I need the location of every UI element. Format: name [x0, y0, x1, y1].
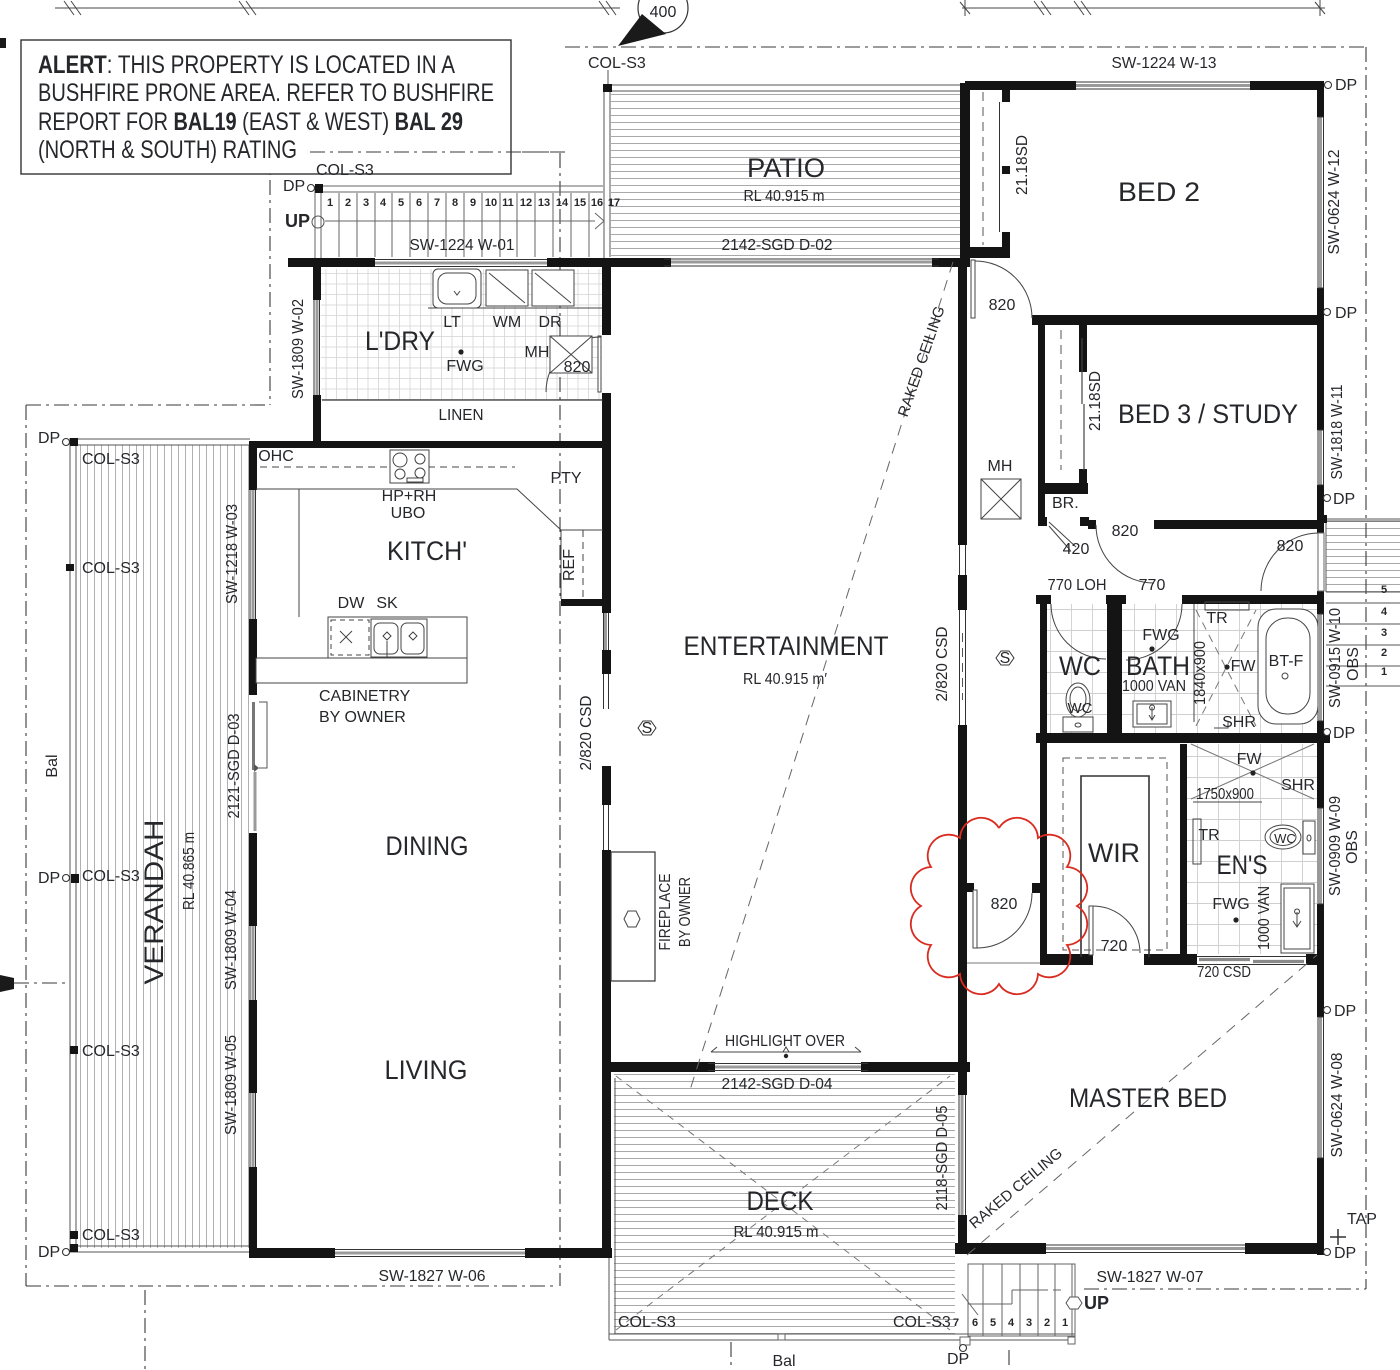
svg-text:770 LOH: 770 LOH [1048, 577, 1107, 594]
svg-text:4: 4 [380, 197, 387, 209]
svg-text:1000 VAN: 1000 VAN [1122, 678, 1186, 695]
svg-text:FWG: FWG [1142, 627, 1179, 644]
svg-text:4: 4 [1381, 606, 1388, 618]
svg-text:UP: UP [285, 211, 310, 231]
svg-text:5: 5 [1381, 584, 1387, 596]
svg-text:2142-SGD D-04: 2142-SGD D-04 [722, 1076, 833, 1093]
svg-text:6: 6 [972, 1317, 978, 1329]
svg-text:SW-0624 W-08: SW-0624 W-08 [1329, 1052, 1346, 1157]
svg-text:Bal: Bal [44, 754, 61, 777]
svg-text:DR: DR [538, 314, 561, 331]
svg-text:BATH: BATH [1126, 651, 1190, 681]
svg-text:SW-1809 W-02: SW-1809 W-02 [290, 299, 307, 399]
svg-text:DP: DP [38, 1244, 60, 1261]
svg-text:DP: DP [1335, 77, 1357, 94]
svg-text:12: 12 [520, 197, 532, 209]
svg-text:1840x900: 1840x900 [1192, 641, 1209, 705]
svg-text:DINING: DINING [386, 831, 469, 861]
svg-text:SW-0909 W-09: SW-0909 W-09 [1327, 796, 1344, 896]
svg-text:RL 40.915 m: RL 40.915 m [734, 1224, 819, 1241]
svg-text:TAP: TAP [1347, 1211, 1377, 1228]
svg-text:OBS: OBS [1344, 830, 1361, 864]
svg-text:LT: LT [443, 314, 461, 331]
svg-text:3: 3 [363, 197, 369, 209]
svg-text:420: 420 [1063, 541, 1090, 558]
svg-text:BR.: BR. [1052, 495, 1079, 512]
svg-text:REF: REF [561, 549, 578, 581]
svg-text:820: 820 [1112, 523, 1139, 540]
svg-text:(NORTH & SOUTH) RATING: (NORTH & SOUTH) RATING [38, 136, 297, 164]
svg-text:7: 7 [953, 1317, 959, 1329]
svg-text:COL-S3: COL-S3 [316, 162, 374, 179]
svg-text:BY OWNER: BY OWNER [677, 877, 694, 947]
svg-text:WC: WC [1274, 831, 1296, 846]
svg-text:820: 820 [564, 359, 591, 376]
svg-text:770: 770 [1139, 577, 1166, 594]
svg-text:DP: DP [1333, 491, 1355, 508]
svg-text:PATIO: PATIO [747, 153, 825, 183]
svg-text:2/820 CSD: 2/820 CSD [934, 627, 951, 702]
svg-text:DP: DP [1335, 305, 1357, 322]
svg-text:7: 7 [434, 197, 440, 209]
svg-text:400: 400 [650, 4, 677, 21]
svg-text:UBO: UBO [391, 505, 426, 522]
svg-text:WC: WC [1068, 700, 1093, 717]
svg-text:LINEN: LINEN [439, 407, 484, 424]
svg-text:REPORT FOR BAL19 (EAST & WEST): REPORT FOR BAL19 (EAST & WEST) BAL 29 [38, 108, 463, 136]
svg-text:DP: DP [283, 178, 305, 195]
svg-text:COL-S3: COL-S3 [82, 1227, 140, 1244]
svg-text:TR: TR [1198, 827, 1219, 844]
svg-text:SHR: SHR [1281, 777, 1315, 794]
svg-text:2118-SGD D-05: 2118-SGD D-05 [934, 1105, 951, 1210]
svg-text:Bal: Bal [772, 1353, 795, 1370]
svg-text:S: S [1000, 650, 1011, 667]
svg-text:SW-1224 W-01: SW-1224 W-01 [410, 237, 515, 254]
svg-text:1000 VAN: 1000 VAN [1256, 886, 1273, 950]
svg-text:COL-S3: COL-S3 [893, 1314, 951, 1331]
svg-text:SK: SK [376, 595, 398, 612]
svg-text:COL-S3: COL-S3 [82, 1043, 140, 1060]
svg-text:21.18SD: 21.18SD [1087, 371, 1104, 431]
svg-text:3: 3 [1026, 1317, 1032, 1329]
svg-text:SW-1809 W-04: SW-1809 W-04 [223, 890, 240, 990]
svg-text:RL 40.915 m′: RL 40.915 m′ [743, 671, 827, 688]
svg-text:DECK: DECK [747, 1186, 814, 1216]
svg-text:14: 14 [556, 197, 569, 209]
svg-text:MH: MH [988, 458, 1013, 475]
svg-text:MASTER BED: MASTER BED [1069, 1083, 1227, 1113]
svg-text:DP: DP [1333, 725, 1355, 742]
svg-text:5: 5 [398, 197, 404, 209]
svg-text:SW-1224 W-13: SW-1224 W-13 [1112, 55, 1217, 72]
svg-text:ALERT: THIS PROPERTY IS LOCATE: ALERT: THIS PROPERTY IS LOCATED IN A [38, 51, 455, 79]
svg-text:COL-S3: COL-S3 [82, 560, 140, 577]
svg-text:SW-1818 W-11: SW-1818 W-11 [1329, 384, 1346, 479]
svg-text:VERANDAH: VERANDAH [139, 820, 169, 985]
svg-text:WIR: WIR [1088, 838, 1140, 868]
svg-text:720 CSD: 720 CSD [1197, 964, 1251, 981]
svg-text:CABINETRY: CABINETRY [319, 688, 411, 705]
svg-text:EN'S: EN'S [1217, 850, 1268, 880]
svg-text:2142-SGD D-02: 2142-SGD D-02 [722, 237, 833, 254]
svg-text:OHC: OHC [258, 448, 294, 465]
svg-text:11: 11 [502, 197, 514, 209]
svg-text:RL 40.915 m: RL 40.915 m [744, 188, 825, 205]
svg-text:UP: UP [1084, 1293, 1109, 1313]
svg-text:KITCH': KITCH' [387, 536, 467, 566]
svg-text:FWG: FWG [1212, 896, 1249, 913]
svg-text:720: 720 [1101, 938, 1128, 955]
svg-text:COL-S3: COL-S3 [588, 55, 646, 72]
svg-text:FW: FW [1237, 751, 1263, 768]
svg-text:5: 5 [990, 1317, 996, 1329]
svg-text:DP: DP [947, 1351, 969, 1368]
svg-text:2: 2 [1044, 1317, 1050, 1329]
svg-text:3: 3 [1381, 627, 1387, 639]
svg-text:BY OWNER: BY OWNER [319, 709, 406, 726]
svg-text:WM: WM [493, 314, 521, 331]
svg-text:COL-S3: COL-S3 [82, 451, 140, 468]
svg-text:1: 1 [1381, 666, 1387, 678]
svg-text:LIVING: LIVING [385, 1055, 468, 1085]
svg-text:OBS: OBS [1345, 647, 1362, 681]
svg-text:10: 10 [485, 197, 497, 209]
svg-text:SW-0624 W-12: SW-0624 W-12 [1326, 149, 1343, 254]
svg-text:21.18SD: 21.18SD [1014, 135, 1031, 195]
svg-text:8: 8 [452, 197, 458, 209]
svg-text:FIREPLACE: FIREPLACE [657, 874, 674, 951]
svg-text:2/820 CSD: 2/820 CSD [578, 696, 595, 771]
svg-text:FWG: FWG [446, 358, 483, 375]
svg-text:DW: DW [338, 595, 366, 612]
svg-text:FW: FW [1231, 658, 1257, 675]
svg-text:HIGHLIGHT OVER: HIGHLIGHT OVER [725, 1033, 845, 1050]
svg-text:BT-F: BT-F [1269, 653, 1304, 670]
svg-text:820: 820 [989, 297, 1016, 314]
svg-text:COL-S3: COL-S3 [618, 1314, 676, 1331]
svg-text:HP+RH: HP+RH [382, 488, 437, 505]
svg-text:MH: MH [525, 344, 550, 361]
svg-text:SW-1827 W-06: SW-1827 W-06 [379, 1268, 486, 1285]
svg-text:15: 15 [574, 197, 586, 209]
svg-text:16: 16 [591, 197, 603, 209]
svg-text:WC: WC [1059, 651, 1101, 681]
svg-text:TR: TR [1206, 610, 1227, 627]
svg-text:COL-S3: COL-S3 [82, 868, 140, 885]
svg-text:1: 1 [1062, 1317, 1068, 1329]
svg-text:L'DRY: L'DRY [365, 326, 435, 356]
svg-text:SW-1809 W-05: SW-1809 W-05 [223, 1035, 240, 1135]
svg-text:6: 6 [416, 197, 422, 209]
svg-text:RL 40.865 m: RL 40.865 m [181, 832, 198, 910]
svg-text:9: 9 [470, 197, 476, 209]
svg-text:BED 3 / STUDY: BED 3 / STUDY [1118, 399, 1298, 429]
svg-text:2: 2 [345, 197, 351, 209]
svg-text:4: 4 [1008, 1317, 1015, 1329]
svg-text:DP: DP [38, 430, 60, 447]
svg-text:820: 820 [991, 896, 1018, 913]
svg-text:13: 13 [538, 197, 550, 209]
svg-text:SHR: SHR [1222, 714, 1256, 731]
svg-text:820: 820 [1277, 538, 1304, 555]
svg-text:2: 2 [1381, 647, 1387, 659]
svg-text:S: S [642, 720, 653, 737]
svg-text:DP: DP [38, 870, 60, 887]
svg-text:1: 1 [327, 197, 333, 209]
svg-text:ENTERTAINMENT: ENTERTAINMENT [684, 631, 889, 661]
svg-text:SW-0915 W-10: SW-0915 W-10 [1327, 608, 1344, 708]
svg-text:17: 17 [608, 197, 620, 209]
svg-text:PTY: PTY [550, 470, 581, 487]
svg-text:DP: DP [1334, 1003, 1356, 1020]
svg-text:DP: DP [1334, 1245, 1356, 1262]
svg-text:SW-1218 W-03: SW-1218 W-03 [224, 504, 241, 604]
svg-text:2121-SGD D-03: 2121-SGD D-03 [226, 713, 243, 818]
svg-text:BUSHFIRE PRONE AREA. REFER TO: BUSHFIRE PRONE AREA. REFER TO BUSHFIRE [38, 79, 494, 107]
svg-text:SW-1827 W-07: SW-1827 W-07 [1097, 1269, 1204, 1286]
svg-text:1750x900: 1750x900 [1196, 786, 1254, 803]
svg-text:BED 2: BED 2 [1118, 177, 1200, 207]
